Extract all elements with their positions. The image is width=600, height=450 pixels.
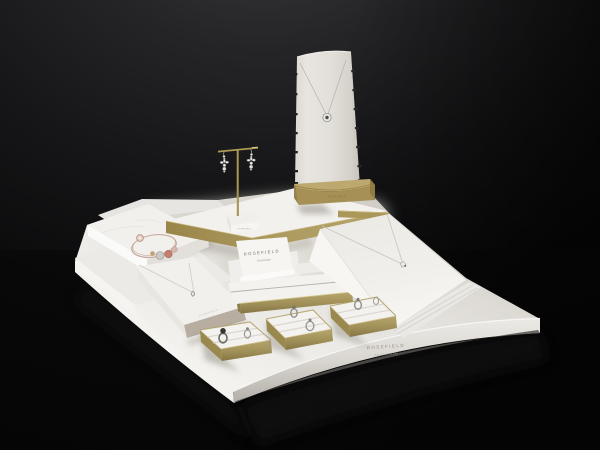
- svg-text:ROSEFIELD: ROSEFIELD: [238, 229, 252, 231]
- svg-text:ROSEFIELD: ROSEFIELD: [328, 196, 347, 199]
